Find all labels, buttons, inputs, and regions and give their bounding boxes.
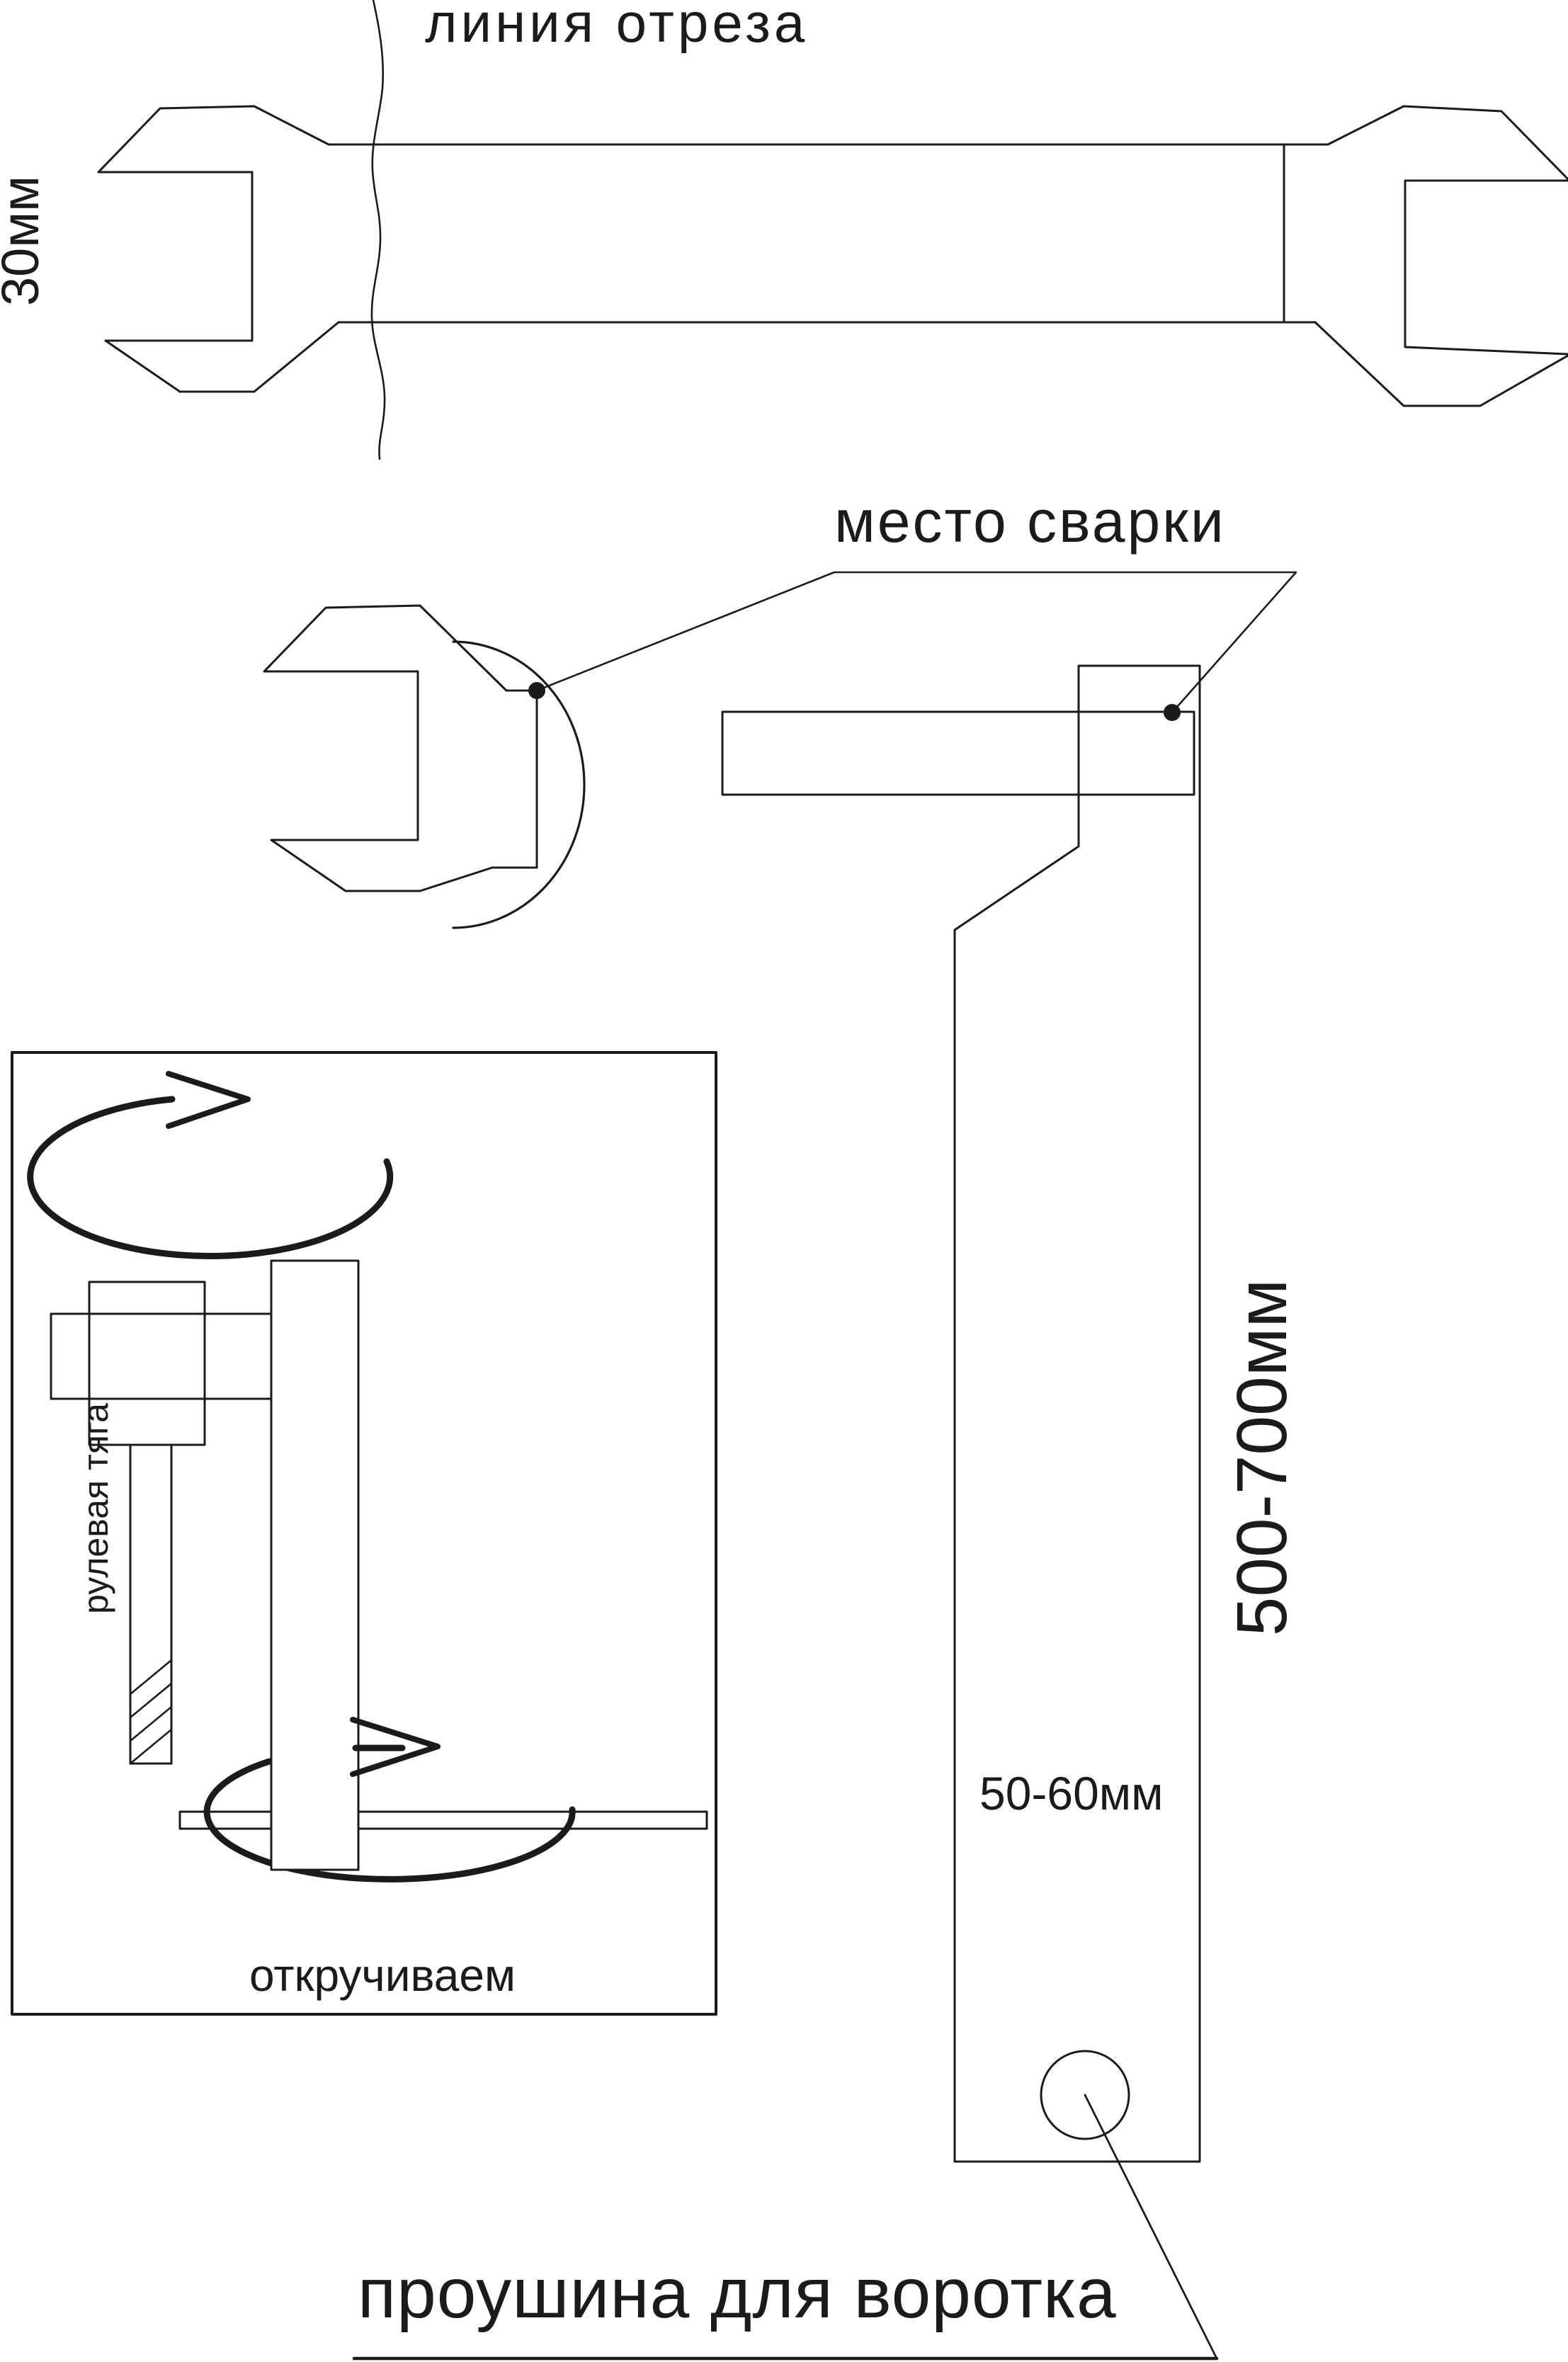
wrench-right-head-mouth <box>1405 181 1568 354</box>
cut-line-title: линия отреза <box>425 0 935 52</box>
horizontal-bar-outline <box>722 712 1194 795</box>
rotation-arrow-bottom-arc <box>207 1761 572 1879</box>
diagram-drawing <box>0 0 1568 2362</box>
thread-hatching <box>130 1660 171 1764</box>
weld-leader-line <box>537 572 1296 712</box>
unscrew-label: откручиваем <box>249 1952 547 1999</box>
wrench-full <box>98 0 1568 459</box>
cut-wavy-line <box>372 0 385 459</box>
wrench-left-head <box>98 106 339 392</box>
welded-tool <box>354 666 1217 2358</box>
cut-head-arc <box>453 642 584 928</box>
vertical-bar-outline <box>955 666 1200 2162</box>
usage-box-border <box>12 1052 716 2014</box>
rod-length-label: 500-700мм <box>1225 1266 1310 1649</box>
lever-bar-rect <box>180 1812 707 1829</box>
wrench-right-head-bottom <box>1315 322 1568 406</box>
diagram-canvas: линия отреза 30мм место сварки 500-700мм… <box>0 0 1568 2362</box>
rotation-arrow-top-arc <box>30 1099 390 1256</box>
usage-box <box>12 1052 716 2014</box>
lever-eye-label: проушина для воротка <box>358 2256 1172 2331</box>
weld-spot-label: место сварки <box>834 490 1316 552</box>
steering-rod-label: рулевая тяга <box>77 1374 117 1643</box>
hole-offset-label: 50-60мм <box>979 1769 1192 1818</box>
tool-pipe-rect <box>271 1261 358 1870</box>
rotation-arrow-top-head <box>169 1074 248 1126</box>
wrench-cut-head <box>264 606 584 928</box>
wrench-size-label: 30мм <box>0 149 50 333</box>
wrench-right-head-top <box>1328 106 1568 179</box>
